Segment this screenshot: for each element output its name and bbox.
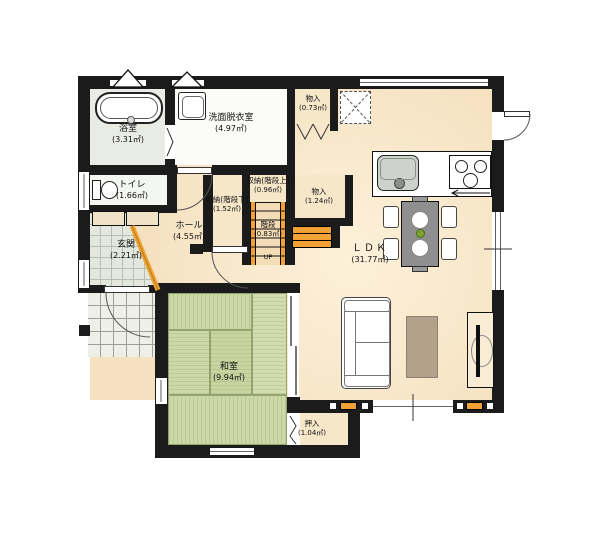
refrigerator-space <box>340 91 371 124</box>
washroom-top-window <box>172 80 204 86</box>
bathroom-folding-door <box>165 125 175 159</box>
entrance-side-window <box>79 260 89 288</box>
wall <box>90 165 177 175</box>
centerpiece <box>416 229 425 238</box>
dining-table-end <box>412 196 428 202</box>
room-label-storage-under-stairs: 収納(階段下)(1.52㎡) <box>194 196 260 213</box>
floor-plan: 浴室(3.31㎡) 洗面脱衣室(4.97㎡) トイレ(1.66㎡) 玄関(2.2… <box>0 0 600 542</box>
room-label-toilet: トイレ(1.66㎡) <box>102 180 162 200</box>
washitsu-bottom-window <box>210 448 254 455</box>
back-door-opening <box>492 112 504 140</box>
wall <box>287 283 300 293</box>
tatami-mat <box>252 293 287 395</box>
chair <box>383 206 399 228</box>
shutter-box-mark <box>330 403 336 409</box>
room-label-stairs: 階段(0.83㎡) <box>246 221 290 238</box>
room-label-bathroom: 浴室(3.31㎡) <box>98 124 158 144</box>
wall <box>155 445 360 458</box>
washitsu-side-window <box>156 378 167 404</box>
stairs-up-label: UP <box>257 254 279 262</box>
kitchen-sink <box>377 155 419 191</box>
shoe-cabinet <box>126 211 159 226</box>
room-label-ldk: ＬＤＫ(31.77㎡) <box>338 243 402 264</box>
front-door-leaf <box>104 286 150 293</box>
room-label-entrance: 玄関(2.21㎡) <box>96 240 156 260</box>
rug <box>406 316 438 378</box>
chair <box>441 206 457 228</box>
room-label-closet-upper: 物入(0.73㎡) <box>292 95 334 112</box>
storage-door-leaf <box>212 246 248 253</box>
wall <box>345 175 353 226</box>
stove <box>449 155 491 189</box>
dining-table-end <box>412 266 428 272</box>
wall <box>155 283 168 458</box>
shutter-box-mark <box>457 403 463 409</box>
sofa-seat <box>355 342 390 376</box>
chair <box>441 238 457 260</box>
shoe-cabinet <box>92 211 125 226</box>
bath-top-window <box>110 80 146 86</box>
room-label-closet-middle: 物入(1.24㎡) <box>296 188 342 205</box>
step <box>292 240 332 248</box>
shutter-box <box>466 402 483 410</box>
plate <box>411 211 429 229</box>
bathtub-drain <box>127 116 135 124</box>
toilet-tank <box>92 180 101 200</box>
porch-pillar <box>79 325 90 336</box>
room-label-japanese-room: 和室(9.94㎡) <box>202 362 256 382</box>
room-label-hall: ホール(4.55㎡) <box>160 221 218 241</box>
sofa-seat <box>355 311 390 344</box>
room-label-storage-above-stairs: 収納(階段上)(0.96㎡) <box>235 177 301 194</box>
room-label-oshiire: 押入(1.04㎡) <box>290 420 334 437</box>
tv-board <box>467 312 494 388</box>
burner <box>455 160 468 173</box>
tv-screen <box>476 325 480 377</box>
shutter-box-mark <box>362 403 368 409</box>
plate <box>411 239 429 257</box>
tatami-mat <box>168 395 287 445</box>
back-door-leaf <box>504 111 530 117</box>
wall <box>212 165 293 175</box>
back-door-arc <box>504 114 530 140</box>
kitchen-top-window <box>360 79 488 86</box>
toilet-side-window <box>79 172 89 210</box>
wall <box>190 244 203 254</box>
wall <box>492 140 504 212</box>
tatami-mat <box>168 293 252 330</box>
porch-tile <box>88 293 160 357</box>
sofa <box>341 297 391 389</box>
burner <box>463 173 478 188</box>
washroom-door-leaf <box>177 167 212 174</box>
shutter-box-mark <box>487 403 493 409</box>
wall <box>167 168 177 213</box>
washitsu-ldk-sliding-door <box>288 293 299 397</box>
ldk-sliding-door <box>373 402 453 411</box>
tv-speaker <box>471 335 493 367</box>
shutter-box <box>340 402 357 410</box>
ldk-side-window <box>492 212 504 290</box>
wall <box>492 89 504 112</box>
wall <box>295 218 345 226</box>
room-label-washroom: 洗面脱衣室(4.97㎡) <box>195 113 267 133</box>
wall <box>155 283 300 293</box>
burner <box>474 160 487 173</box>
bathtub <box>95 92 163 124</box>
